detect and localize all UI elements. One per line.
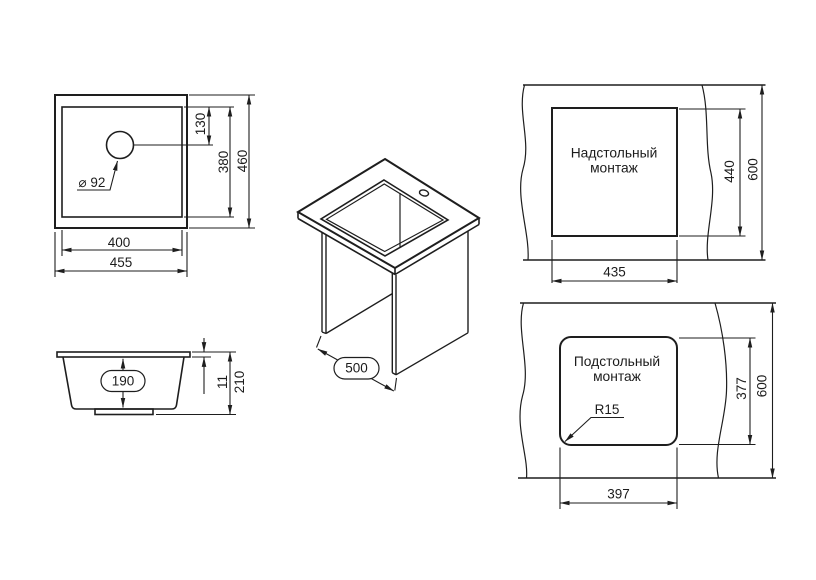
dim-corner-radius: R15: [595, 402, 620, 417]
dim-bowl-depth: 190: [112, 374, 135, 389]
dim-bowl-height: 380: [216, 151, 231, 174]
drain-hole-circle: [107, 132, 134, 159]
iso-countertop-face: [298, 159, 479, 268]
dim-total-height: 210: [232, 371, 247, 394]
dim-rim-thickness: 11: [215, 375, 230, 389]
dim-bowl-width: 400: [108, 235, 131, 250]
radius-leader: [565, 418, 624, 442]
undermount-break-line-right: [715, 303, 727, 478]
dim-cutout-depth-under: 377: [734, 377, 749, 400]
iso-bowl-opening-outer: [321, 180, 448, 256]
overmount-break-line-right: [702, 85, 713, 260]
sink-technical-drawing: ⌀ 92 130 380 460 400 455 190 11 210 500: [0, 0, 816, 580]
dim-cutout-width-over: 435: [603, 265, 626, 280]
undermount-break-line-left: [520, 303, 527, 478]
plan-inner-square: [62, 107, 182, 217]
dim-counter-depth-under: 600: [755, 375, 770, 398]
plan-view: ⌀ 92 130 380 460 400 455: [55, 95, 255, 277]
overmount-view: Надстольный монтаж 435 440 600: [521, 85, 766, 283]
section-rim: [57, 352, 190, 357]
overmount-extension-lines: [552, 109, 746, 283]
drawing-svg: ⌀ 92 130 380 460 400 455 190 11 210 500: [0, 0, 816, 580]
overmount-break-line-left: [521, 85, 529, 260]
dim-outer-height: 460: [235, 150, 250, 173]
dim-hole-dia: ⌀ 92: [79, 175, 106, 190]
plan-outer-square: [55, 95, 187, 228]
dim-hole-offset: 130: [193, 113, 208, 136]
undermount-label-line1: Подстольный: [574, 354, 660, 369]
dim-cabinet-width: 500: [345, 361, 368, 376]
overmount-label-line1: Надстольный: [571, 146, 658, 161]
dim-counter-depth-over: 600: [746, 158, 761, 181]
dim-cutout-depth-over: 440: [722, 160, 737, 183]
section-foot: [95, 409, 153, 415]
undermount-label-line2: монтаж: [593, 369, 642, 384]
dim-outer-width: 455: [110, 255, 133, 270]
undermount-view: Подстольный монтаж R15 397 377 600: [518, 303, 776, 509]
overmount-label-line2: монтаж: [590, 161, 639, 176]
dim-cutout-width-under: 397: [607, 487, 630, 502]
section-view: 190 11 210: [57, 338, 247, 415]
isometric-view: 500: [298, 159, 479, 391]
iso-faucet-hole: [419, 189, 429, 197]
iso-cabinet-lines: [322, 231, 468, 375]
